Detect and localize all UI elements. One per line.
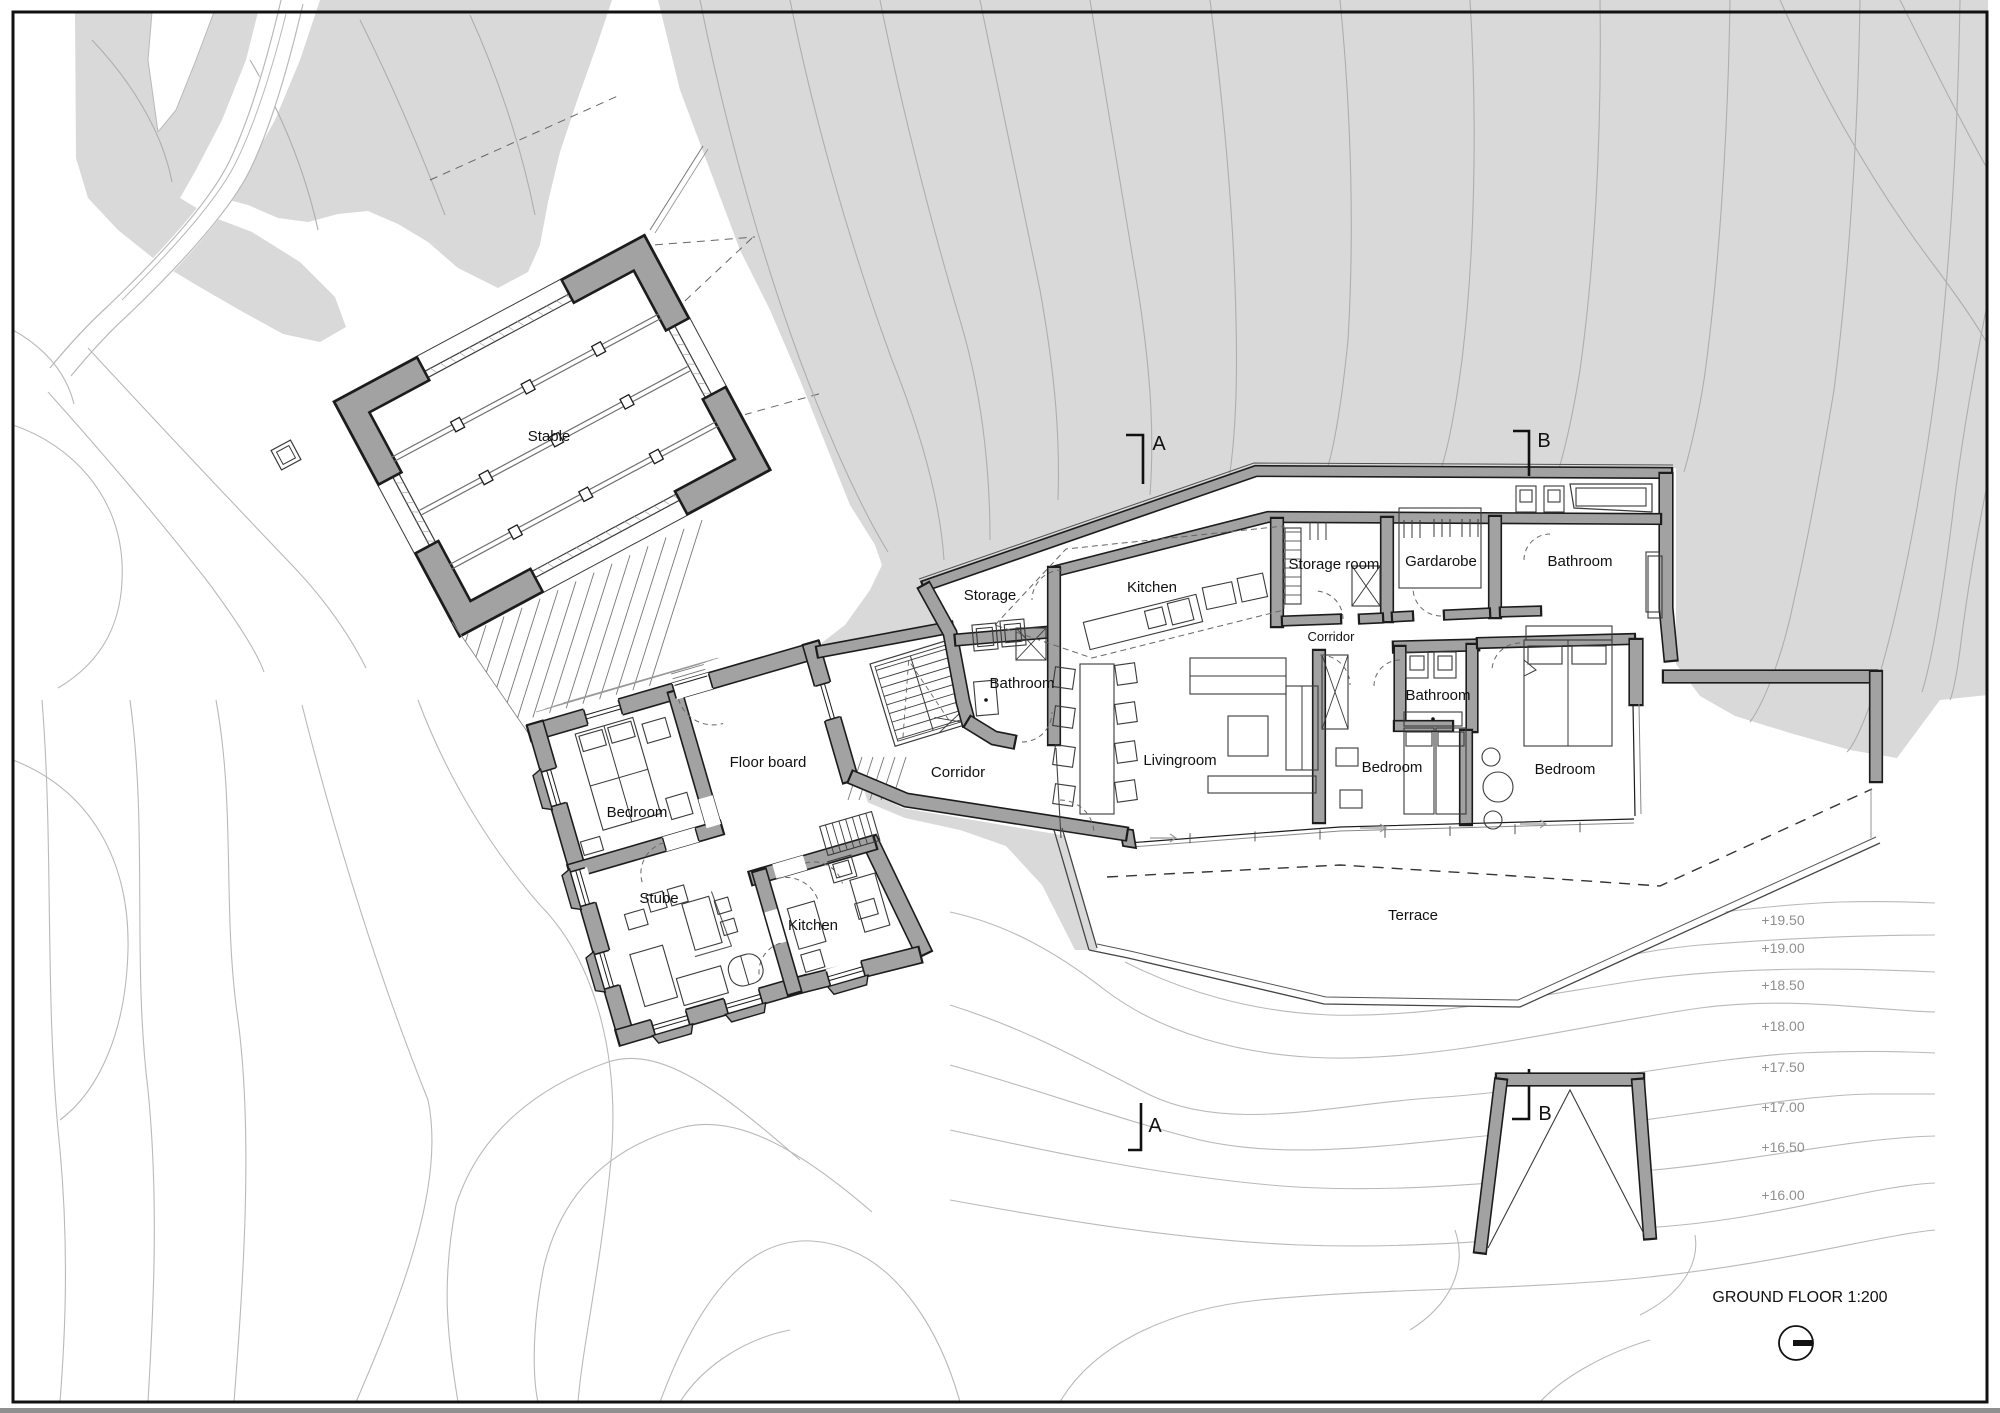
- svg-text:Kitchen: Kitchen: [1127, 579, 1177, 596]
- svg-text:Corridor: Corridor: [1308, 629, 1356, 644]
- svg-text:Storage: Storage: [964, 587, 1017, 604]
- svg-text:Stube: Stube: [639, 890, 678, 907]
- svg-text:Terrace: Terrace: [1388, 907, 1438, 924]
- svg-text:+17.00: +17.00: [1761, 1099, 1804, 1115]
- svg-text:Bedroom: Bedroom: [1362, 759, 1423, 776]
- svg-text:Floor board: Floor board: [730, 754, 807, 771]
- svg-text:Bedroom: Bedroom: [1535, 761, 1596, 778]
- svg-text:Stable: Stable: [528, 428, 571, 445]
- svg-text:Corridor: Corridor: [931, 764, 985, 781]
- svg-text:Livingroom: Livingroom: [1143, 752, 1216, 769]
- svg-text:Bedroom: Bedroom: [607, 804, 668, 821]
- svg-text:B: B: [1538, 1103, 1551, 1125]
- svg-text:Bathroom: Bathroom: [989, 675, 1054, 692]
- svg-text:+16.00: +16.00: [1761, 1187, 1804, 1203]
- svg-text:+19.50: +19.50: [1761, 912, 1804, 928]
- svg-text:Gardarobe: Gardarobe: [1405, 553, 1477, 570]
- svg-text:+17.50: +17.50: [1761, 1059, 1804, 1075]
- svg-text:GROUND FLOOR 1:200: GROUND FLOOR 1:200: [1712, 1289, 1887, 1306]
- svg-text:B: B: [1537, 430, 1550, 452]
- svg-text:+19.00: +19.00: [1761, 940, 1804, 956]
- svg-text:A: A: [1148, 1115, 1162, 1137]
- svg-text:+18.50: +18.50: [1761, 977, 1804, 993]
- svg-text:A: A: [1152, 433, 1166, 455]
- svg-text:Storage room: Storage room: [1289, 556, 1380, 573]
- svg-text:+16.50: +16.50: [1761, 1139, 1804, 1155]
- svg-text:Bathroom: Bathroom: [1547, 553, 1612, 570]
- svg-text:Kitchen: Kitchen: [788, 917, 838, 934]
- svg-text:+18.00: +18.00: [1761, 1018, 1804, 1034]
- svg-text:Bathroom: Bathroom: [1405, 687, 1470, 704]
